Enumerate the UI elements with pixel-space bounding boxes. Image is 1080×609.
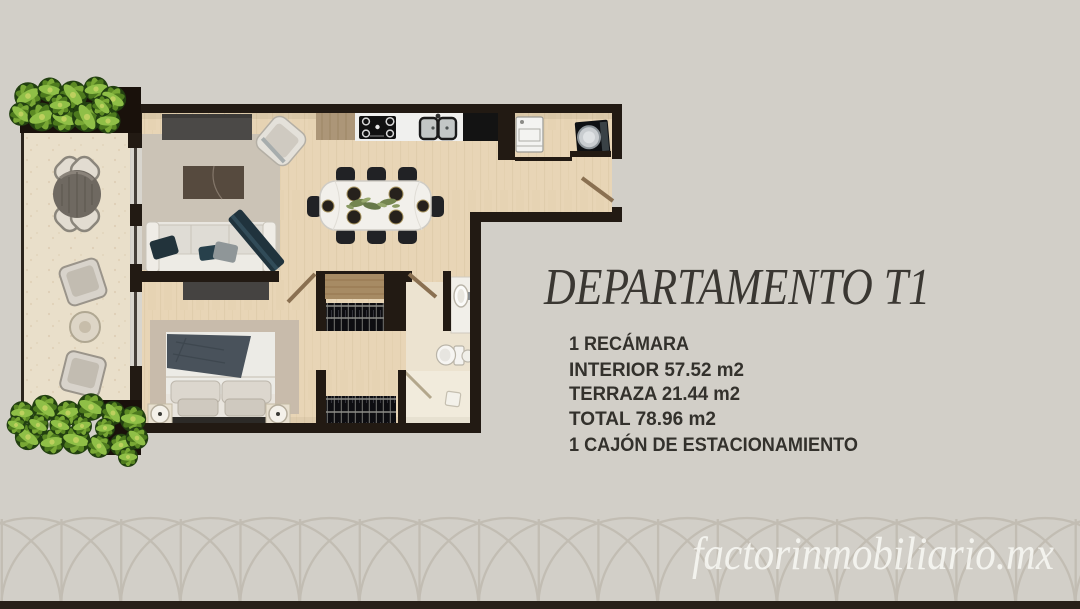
svg-text:TOTAL 78.96 m2: TOTAL 78.96 m2 — [569, 408, 716, 430]
svg-text:TERRAZA 21.44 m2: TERRAZA 21.44 m2 — [569, 383, 740, 405]
svg-text:1 CAJÓN DE ESTACIONAMIENTO: 1 CAJÓN DE ESTACIONAMIENTO — [569, 432, 858, 456]
svg-text:1 RECÁMARA: 1 RECÁMARA — [569, 332, 689, 355]
svg-text:factorinmobiliario.mx: factorinmobiliario.mx — [692, 528, 1054, 580]
svg-text:INTERIOR 57.52 m2: INTERIOR 57.52 m2 — [569, 359, 744, 381]
svg-text:DEPARTAMENTO T1: DEPARTAMENTO T1 — [543, 259, 930, 316]
